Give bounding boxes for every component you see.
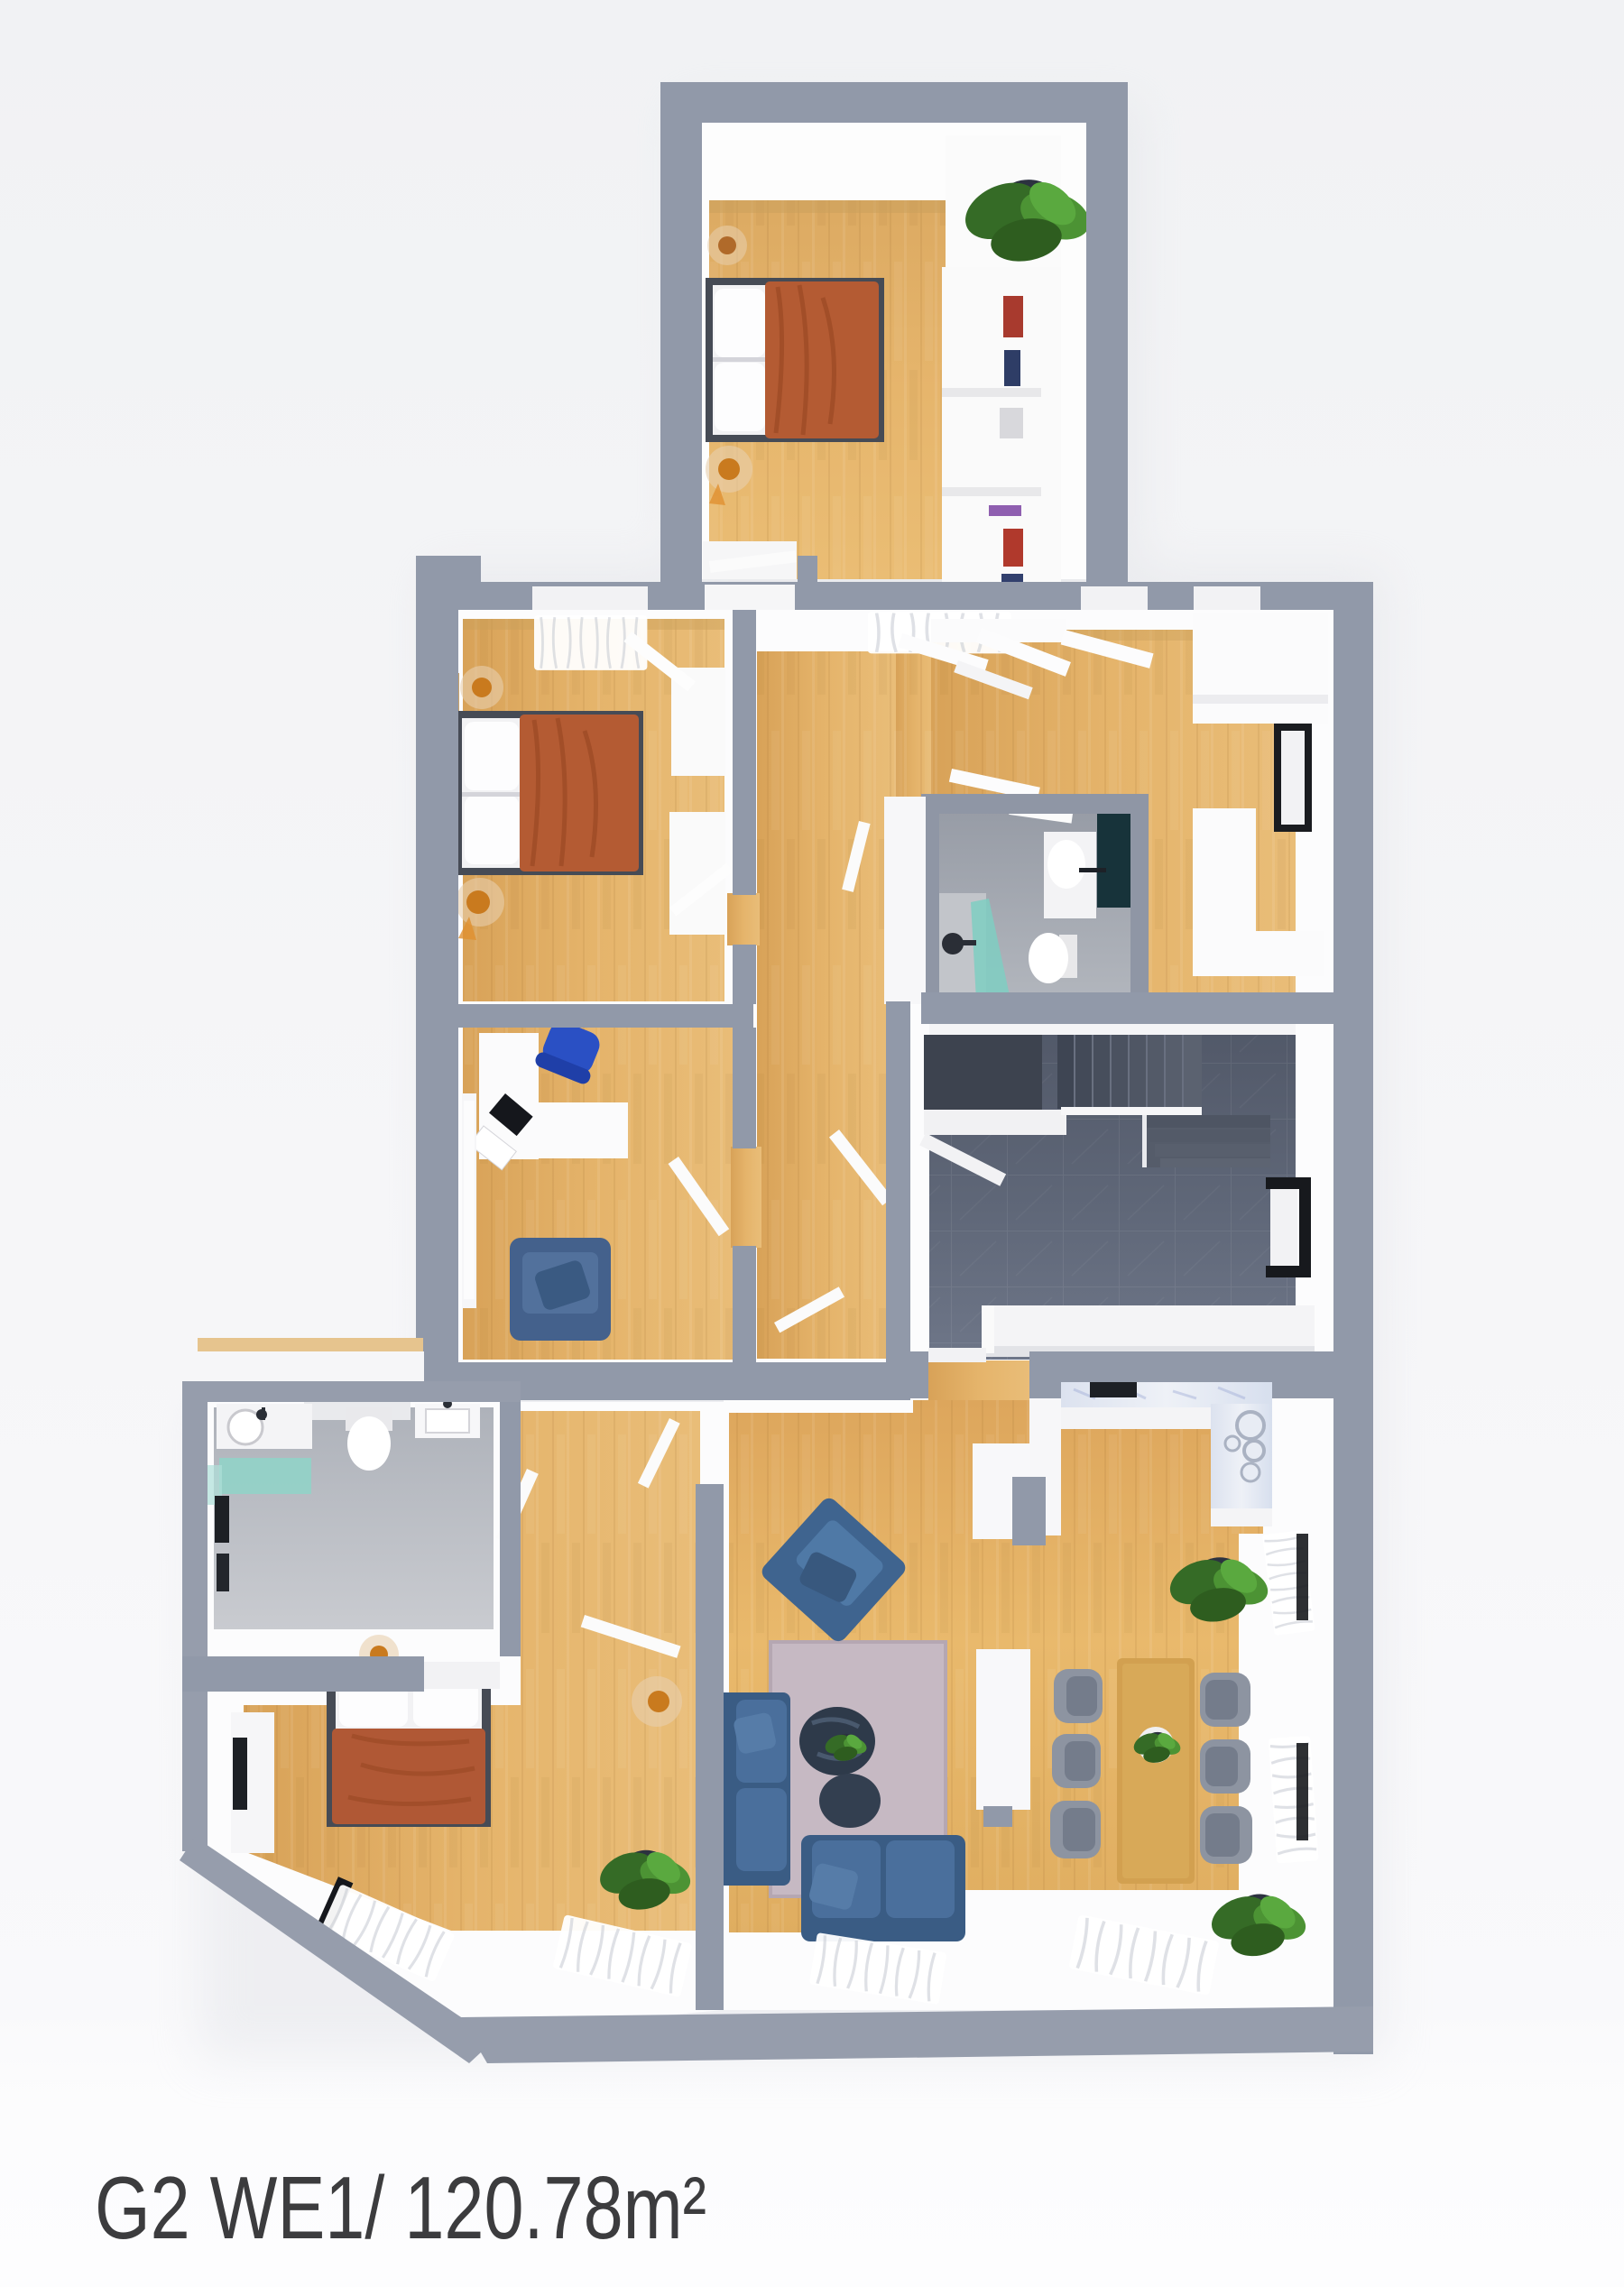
svg-text:G2 WE1/ 120.78m²: G2 WE1/ 120.78m² (95, 2158, 706, 2257)
